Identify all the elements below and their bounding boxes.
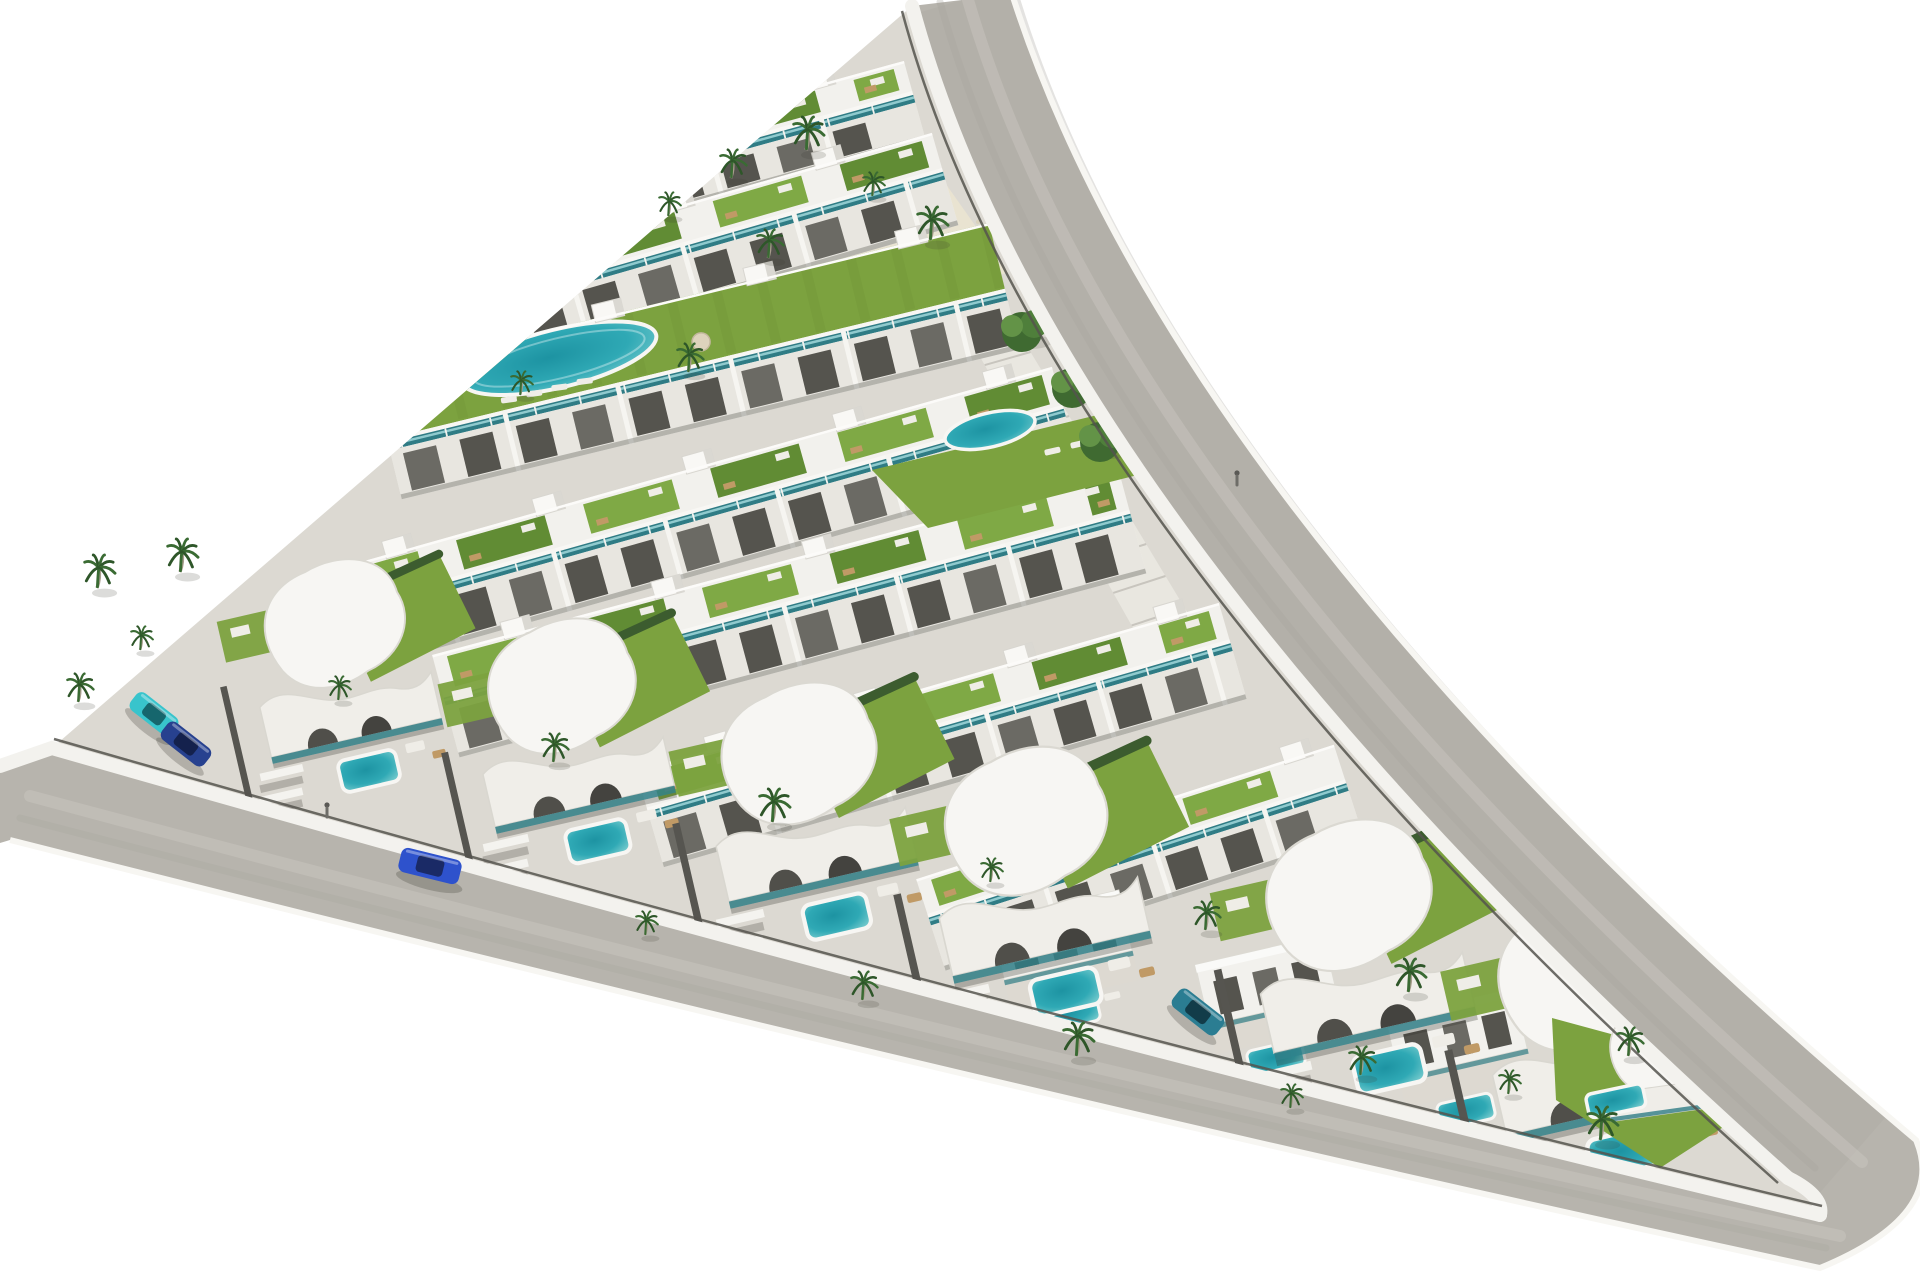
palm-frond bbox=[1360, 1058, 1361, 1074]
site-plan-render bbox=[0, 0, 1920, 1280]
palm-shadow bbox=[1071, 1057, 1096, 1066]
palm-shadow bbox=[1286, 1108, 1304, 1114]
palm-shadow bbox=[549, 763, 571, 771]
palm-shadow bbox=[334, 700, 352, 706]
palm-shadow bbox=[1595, 1141, 1620, 1150]
architectural-render-canvas bbox=[0, 0, 1920, 1280]
palm-shadow bbox=[767, 823, 792, 832]
palm-shadow bbox=[74, 703, 96, 711]
palm-frond bbox=[1290, 1094, 1291, 1107]
palm-frond bbox=[97, 568, 98, 587]
palm-shadow bbox=[92, 589, 117, 598]
palm-frond bbox=[553, 745, 554, 761]
palm-frond bbox=[862, 983, 863, 999]
palm-shadow bbox=[1624, 1057, 1646, 1065]
palm-shadow bbox=[1201, 931, 1223, 939]
palm-frond bbox=[806, 130, 807, 149]
palm-frond bbox=[1205, 913, 1206, 929]
palm-shadow bbox=[516, 395, 534, 401]
palm-frond bbox=[1076, 1036, 1077, 1055]
palm-shadow bbox=[684, 373, 706, 381]
palm-shadow bbox=[664, 216, 682, 222]
palm-shadow bbox=[858, 1001, 880, 1009]
palm-frond bbox=[930, 220, 931, 239]
palm-shadow bbox=[641, 935, 659, 941]
palm-frond bbox=[180, 552, 181, 571]
palm-frond bbox=[1628, 1039, 1629, 1055]
palm-shadow bbox=[801, 151, 826, 160]
palm-shadow bbox=[1356, 1076, 1378, 1084]
palm-frond bbox=[772, 802, 773, 821]
palm-shadow bbox=[727, 179, 749, 187]
palm-frond bbox=[768, 241, 769, 257]
palm-frond bbox=[688, 355, 689, 371]
palm-frond bbox=[872, 182, 873, 195]
palm-frond bbox=[1508, 1080, 1509, 1093]
palm-shadow bbox=[986, 882, 1004, 888]
palm-frond bbox=[1408, 972, 1409, 991]
palm-frond bbox=[645, 921, 646, 934]
palm-frond bbox=[1600, 1120, 1601, 1139]
tree-foliage bbox=[1001, 315, 1023, 337]
palm-shadow bbox=[868, 196, 886, 202]
palm-frond bbox=[338, 686, 339, 699]
palm-shadow bbox=[764, 259, 786, 267]
palm-shadow bbox=[136, 650, 154, 656]
palm-frond bbox=[731, 161, 732, 177]
palm-shadow bbox=[925, 241, 950, 250]
palm-frond bbox=[520, 381, 521, 394]
palm-shadow bbox=[1403, 993, 1428, 1002]
palm-frond bbox=[78, 685, 79, 701]
palm-shadow bbox=[1504, 1094, 1522, 1100]
palm-frond bbox=[140, 636, 141, 649]
palm-shadow bbox=[175, 573, 200, 582]
palm-frond bbox=[668, 202, 669, 215]
palm-frond bbox=[990, 868, 991, 881]
